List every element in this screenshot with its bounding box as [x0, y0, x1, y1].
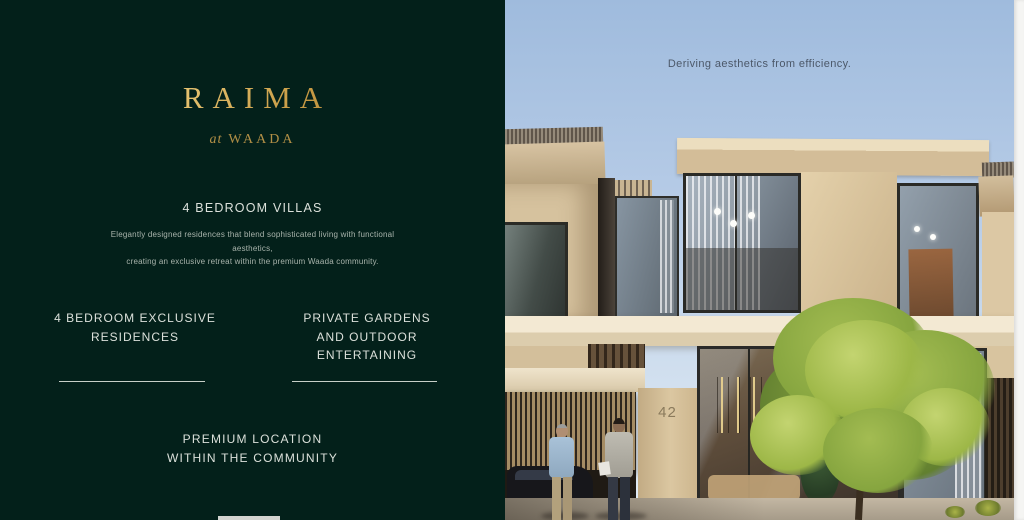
feature-residences-label: 4 BEDROOM EXCLUSIVE RESIDENCES: [40, 309, 230, 346]
person-right: [599, 418, 641, 520]
person-leg: [620, 477, 630, 520]
section-headline: 4 BEDROOM VILLAS: [0, 201, 505, 215]
feature-divider-left: [59, 381, 205, 382]
slide: RAIMA atWAADA 4 BEDROOM VILLAS Elegantly…: [0, 0, 1024, 520]
house-number: 42: [638, 404, 697, 421]
person-papers: [598, 461, 611, 475]
feature-residences: 4 BEDROOM EXCLUSIVE RESIDENCES: [40, 309, 230, 346]
feature-gardens: PRIVATE GARDENS AND OUTDOOR ENTERTAINING: [272, 309, 462, 365]
feature-divider-right: [292, 381, 437, 382]
pendant-light: [748, 212, 755, 219]
logo-title: RAIMA: [0, 80, 505, 116]
page-edge-strip: [1014, 0, 1024, 520]
logo-subtitle-prefix: at: [210, 132, 223, 147]
person-leg: [608, 477, 618, 520]
window-interior-shade: [686, 248, 798, 310]
interior-artwork: [909, 249, 954, 319]
window-mullion: [735, 176, 737, 310]
pendant-light: [714, 208, 721, 215]
parapet-slab: [677, 138, 989, 176]
logo-subtitle: atWAADA: [0, 132, 505, 148]
person-leg: [563, 477, 572, 520]
photo-caption: Deriving aesthetics from efficiency.: [505, 58, 1014, 70]
logo-subtitle-brand: WAADA: [228, 132, 295, 147]
shrub: [945, 506, 965, 518]
page-indicator-bar: [218, 516, 280, 520]
curtain: [660, 200, 674, 313]
roof-fascia-right: [978, 175, 1014, 216]
person-left: [545, 424, 581, 520]
shrub: [975, 500, 1001, 516]
upper-window-right: [897, 183, 979, 333]
porch-lintel: [505, 368, 645, 392]
villa-photo: Deriving aesthetics from efficiency.: [505, 0, 1014, 520]
porch-wood-panel: [588, 344, 645, 370]
upper-window-far-left: [505, 222, 568, 324]
pendant-light: [930, 234, 936, 240]
feature-location-label: PREMIUM LOCATION WITHIN THE COMMUNITY: [0, 430, 505, 468]
brand-logo: RAIMA atWAADA: [0, 80, 505, 148]
person-head: [556, 424, 568, 438]
person-shirt: [549, 437, 574, 478]
tree-foliage: [823, 408, 933, 493]
pendant-light: [730, 220, 737, 227]
person-head: [613, 418, 625, 433]
pendant-light: [914, 226, 920, 232]
person-leg: [552, 477, 561, 520]
upper-window-mid-left: [615, 196, 679, 318]
upper-corner-window: [683, 173, 801, 313]
roof-fascia-left: [505, 142, 606, 189]
feature-gardens-label: PRIVATE GARDENS AND OUTDOOR ENTERTAINING: [272, 309, 462, 365]
section-description: Elegantly designed residences that blend…: [92, 228, 413, 269]
brand-panel: RAIMA atWAADA 4 BEDROOM VILLAS Elegantly…: [0, 0, 505, 520]
